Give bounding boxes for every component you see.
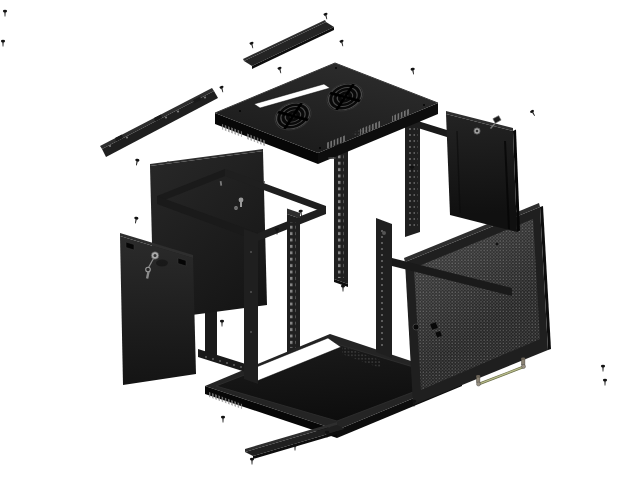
exploded-view-canvas: [0, 0, 640, 480]
cam-lock: [474, 128, 480, 134]
brand-mark: [328, 157, 336, 159]
wire-terminal: [476, 375, 481, 386]
cam-lock: [151, 252, 159, 260]
rack-rail-left: [287, 209, 300, 361]
left-side-panel: [120, 233, 196, 385]
wire-terminal: [521, 358, 526, 369]
door-thumbscrew: [496, 243, 499, 246]
product-illustration: [0, 0, 640, 480]
right-side-panel: [446, 111, 520, 232]
rack-rail-right: [334, 141, 348, 287]
